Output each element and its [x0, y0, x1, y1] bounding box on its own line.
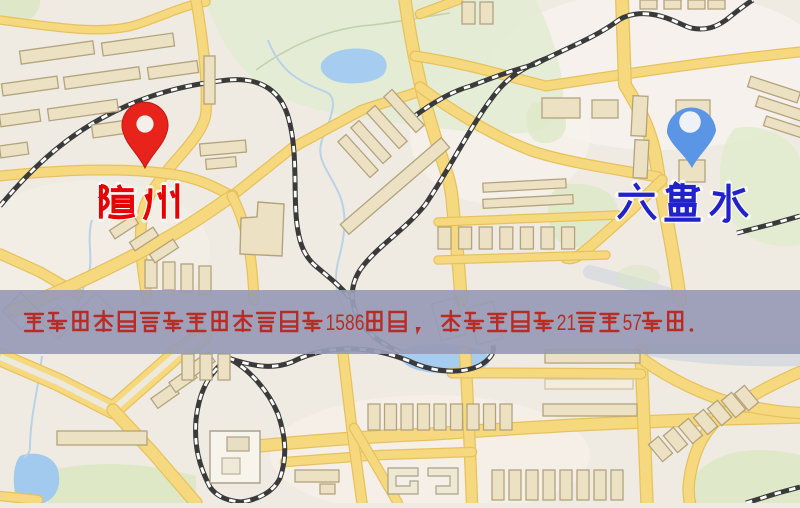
svg-text:57: 57	[623, 310, 642, 335]
svg-text:1586: 1586	[326, 310, 365, 335]
svg-text:21: 21	[557, 310, 576, 335]
